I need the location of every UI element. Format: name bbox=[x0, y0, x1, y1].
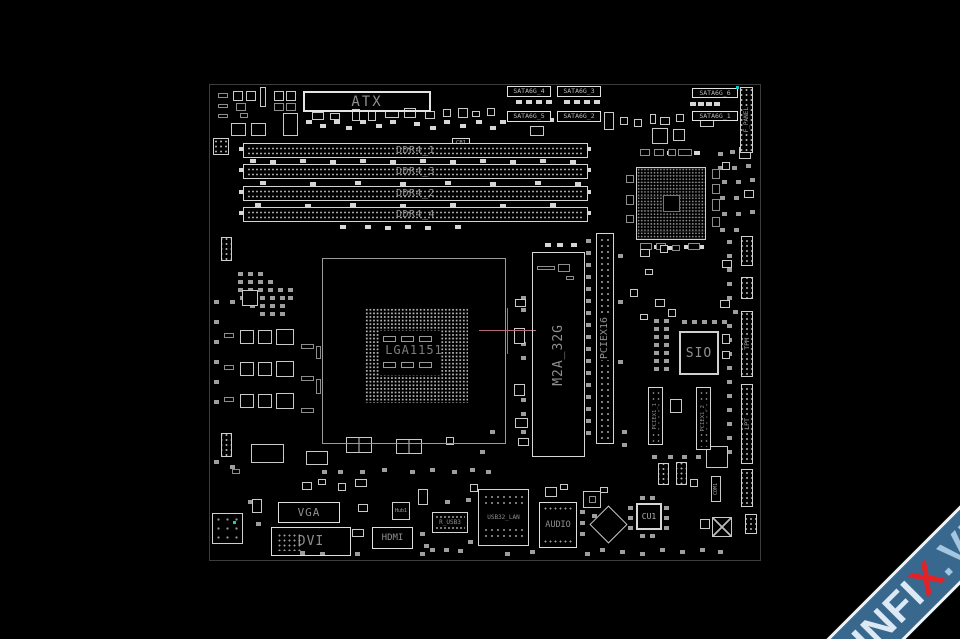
dimm-slot-ddr4-2[interactable]: DDR4_2 bbox=[243, 186, 588, 201]
sata-label: SATA6G_4 bbox=[513, 88, 544, 95]
connector-com1-label: COM1 bbox=[714, 483, 719, 495]
chip-cu1-label: CU1 bbox=[642, 513, 656, 521]
connector-com1[interactable]: COM1 bbox=[711, 476, 721, 502]
connector-sata6g-2[interactable]: SATA6G_2 bbox=[557, 111, 601, 122]
connector-r-usb3[interactable]: R_USB3 bbox=[432, 512, 468, 533]
connector-sata6g-6[interactable]: SATA6G_6 bbox=[692, 88, 738, 98]
connector-usb32-lan-label: USB32_LAN bbox=[487, 514, 520, 522]
connector-com-header[interactable] bbox=[741, 469, 753, 507]
slot-m2-label: M2A_32G bbox=[552, 324, 565, 386]
dimm-label: DDR4_3 bbox=[244, 166, 587, 177]
connector-dvi-label: DVI bbox=[298, 535, 324, 548]
sata-label: SATA6G_6 bbox=[699, 90, 730, 97]
pin-dots bbox=[483, 494, 524, 508]
connector-usb32-lan[interactable]: USB32_LAN bbox=[478, 489, 529, 546]
connector-tpm-label: TPM bbox=[744, 337, 751, 351]
connector-f-panel-label: F_PANEL bbox=[744, 106, 750, 133]
dimm-label: DDR4_2 bbox=[244, 188, 587, 199]
dimm-label: DDR4_1 bbox=[244, 145, 587, 156]
mounting-pad-grid bbox=[212, 513, 243, 544]
slot-pciex1-1-label: PCIEX1_1 bbox=[653, 402, 659, 431]
slot-pciex1-1[interactable]: PCIEX1_1 bbox=[648, 387, 663, 445]
pch-center-mark bbox=[663, 195, 680, 212]
connector-vga[interactable]: VGA bbox=[278, 502, 340, 523]
connector-dvi[interactable]: DVI bbox=[271, 527, 351, 556]
pin-dots bbox=[483, 527, 524, 541]
dimm-slot-ddr4-3[interactable]: DDR4_3 bbox=[243, 164, 588, 179]
connector-sata6g-3[interactable]: SATA6G_3 bbox=[557, 86, 601, 97]
connector-vga-label: VGA bbox=[298, 507, 321, 518]
connector-audio[interactable]: AUDIO bbox=[539, 502, 577, 548]
slot-m2a-32g[interactable]: M2A_32G bbox=[532, 252, 585, 457]
boardview-canvas[interactable]: ATX CB1 SATA6G_4 SATA6G_3 SATA6G_5 SATA6… bbox=[0, 0, 960, 639]
slot-pciex16-label: PCIEX16 bbox=[600, 316, 610, 360]
connector-sata6g-5[interactable]: SATA6G_5 bbox=[507, 111, 551, 122]
pad-layer-gray bbox=[0, 0, 5, 4]
slot-pciex16[interactable]: PCIEX16 bbox=[596, 233, 614, 444]
pin-dots bbox=[277, 533, 301, 551]
highlight-dot bbox=[736, 86, 739, 89]
pin-dots bbox=[435, 515, 465, 519]
chip-cu1[interactable]: CU1 bbox=[636, 503, 662, 530]
cpu-socket[interactable]: LGA1151 bbox=[322, 258, 506, 444]
pin-dots bbox=[543, 539, 573, 544]
connector-atx[interactable]: ATX bbox=[303, 91, 431, 112]
cpu-socket-label: LGA1151 bbox=[363, 344, 465, 356]
dimm-label: DDR4_4 bbox=[244, 209, 587, 220]
connector-f-panel[interactable]: F_PANEL bbox=[740, 87, 753, 153]
chip-hub1[interactable]: Hub1 bbox=[392, 502, 410, 520]
chip-sio-label: SIO bbox=[686, 347, 712, 360]
connector-atx-label: ATX bbox=[351, 95, 382, 109]
connector-audio-label: AUDIO bbox=[545, 521, 571, 530]
slot-pciex1-2[interactable]: PCIEX1_2 bbox=[696, 387, 711, 450]
sata-label: SATA6G_3 bbox=[563, 88, 594, 95]
connector-hdmi[interactable]: HDMI bbox=[372, 527, 413, 549]
pin-dots bbox=[543, 506, 573, 511]
connector-tpm[interactable]: TPM bbox=[741, 311, 753, 377]
dimm-slot-ddr4-4[interactable]: DDR4_4 bbox=[243, 207, 588, 222]
pin-dots bbox=[435, 526, 465, 530]
connector-lpt-label: LPT bbox=[744, 417, 751, 431]
slot-pciex1-2-label: PCIEX1_2 bbox=[701, 404, 707, 433]
watermark-ribbon: HNFIX.VN bbox=[788, 459, 960, 639]
connector-sata6g-1[interactable]: SATA6G_1 bbox=[692, 111, 738, 121]
chip-hub1-label: Hub1 bbox=[395, 509, 407, 514]
dimm-slot-ddr4-1[interactable]: DDR4_1 bbox=[243, 143, 588, 158]
chip-sio[interactable]: SIO bbox=[679, 331, 719, 375]
sata-label: SATA6G_1 bbox=[699, 113, 730, 120]
sata-label: SATA6G_2 bbox=[563, 113, 594, 120]
connector-hdmi-label: HDMI bbox=[382, 534, 404, 543]
sata-label: SATA6G_5 bbox=[513, 113, 544, 120]
connector-lpt[interactable]: LPT bbox=[741, 384, 753, 464]
connector-sata6g-4[interactable]: SATA6G_4 bbox=[507, 86, 551, 97]
chip-pch[interactable] bbox=[636, 167, 706, 240]
